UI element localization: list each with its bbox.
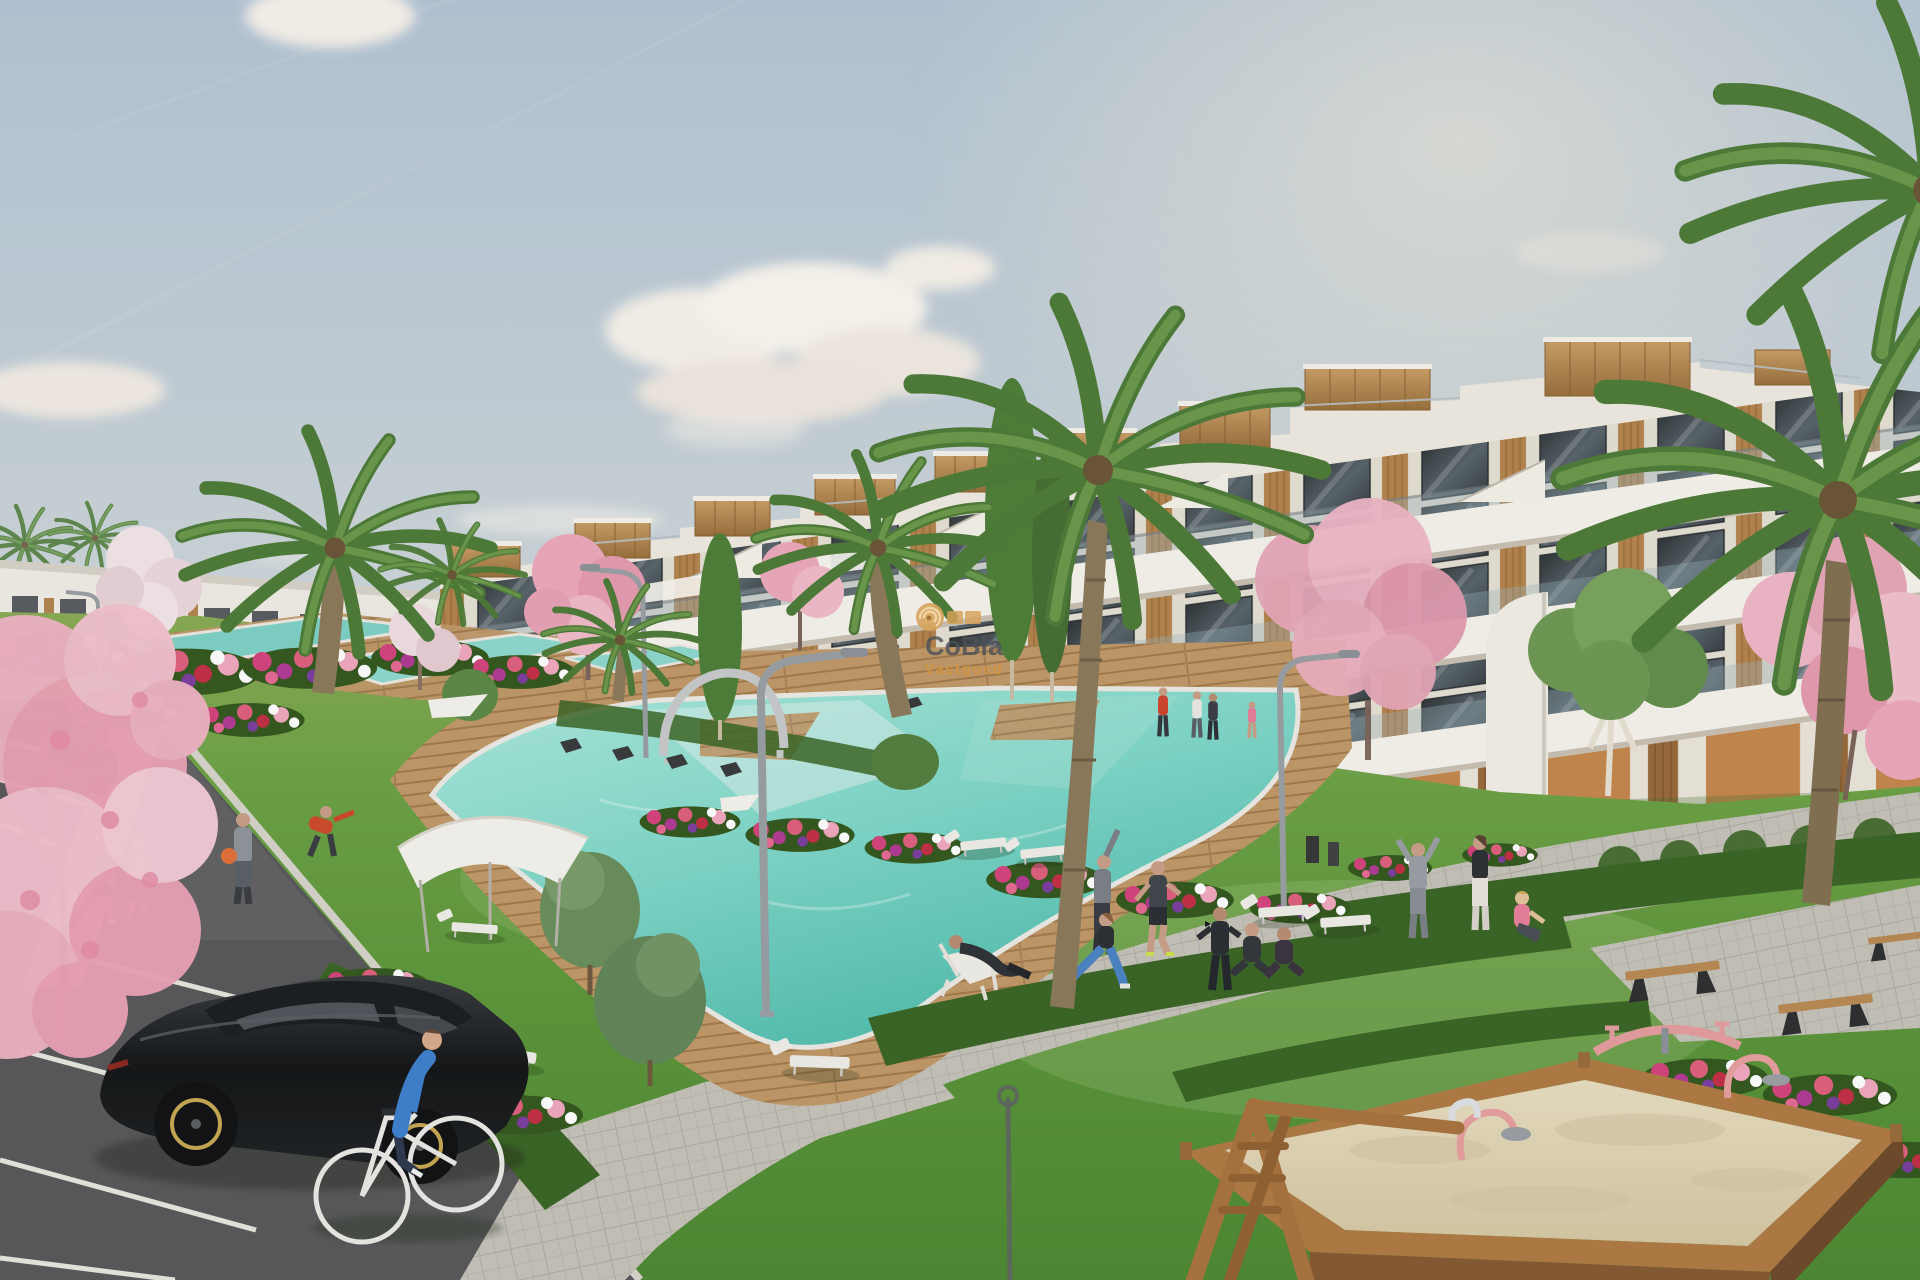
vignette (0, 0, 1920, 1280)
render-image: CoBla Vastgoed (0, 0, 1920, 1280)
scene-canvas (0, 0, 1920, 1280)
